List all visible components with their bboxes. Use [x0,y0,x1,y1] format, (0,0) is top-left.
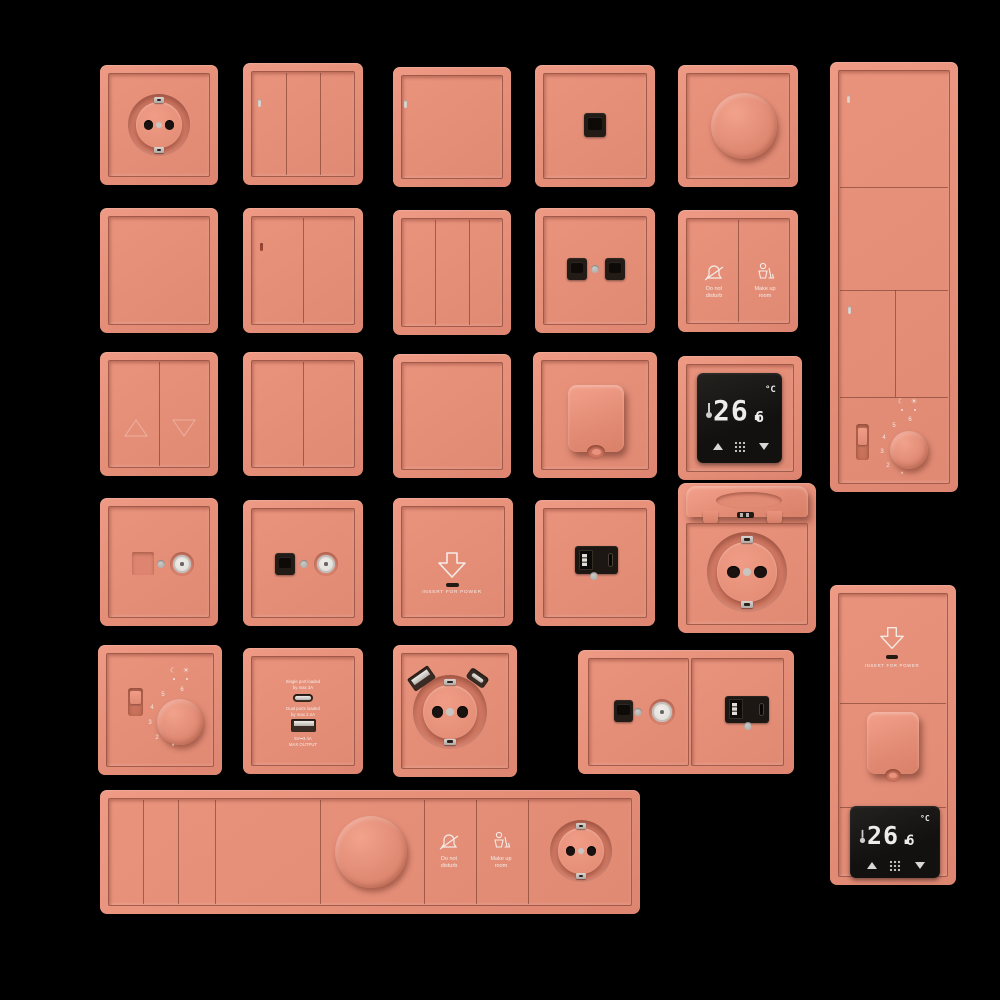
rocker-3gang[interactable] [251,71,355,177]
temperature-decimal: 6 [906,834,915,848]
mur-label-line1: Make up [754,286,775,293]
usb-c-note-line2: by max 3A [286,685,321,691]
thermostat-screen: 26. 6 °C [697,373,782,463]
rocker-wide[interactable] [214,798,319,906]
indicator-dot [590,572,598,580]
flap-pull-notch[interactable] [885,769,901,782]
flap-pull-notch[interactable] [587,445,605,459]
mur-label-line2: room [490,863,511,870]
dnd-label-line2: disturb [441,863,458,870]
moon-icon: ☾ [898,399,904,406]
ground-clip-icon [576,873,586,879]
schuko-socket [550,820,612,882]
moon-icon: ☾ [170,668,176,675]
thermostat-slider[interactable] [128,688,143,716]
indicator-dot [744,722,752,730]
dnd-label-line2: disturb [706,293,723,300]
insert-for-power-label: INSERT FOR POWER [865,663,920,669]
insert-arrow-icon [436,551,468,579]
smart-thermostat-panel: 26. 6 °C [678,356,802,480]
blind-up-button[interactable] [108,360,159,468]
up-triangle-icon [123,418,149,438]
ethernet-port [605,258,625,280]
menu-grid-icon[interactable] [734,441,746,452]
dial-number: 2 [155,735,158,741]
status-led [258,99,261,107]
rocker-narrow-3[interactable] [177,798,214,906]
schuko-usb-panel [393,645,517,777]
product-collage: ☾ ☀ 6 5 4 3 2 * [0,0,1000,1000]
usb-charger-panel [535,500,655,626]
switch-1gang-plain-panel [100,208,218,333]
switch-1gang-plain-panel-2 [393,354,511,478]
socket-hole [727,566,740,579]
card-slot[interactable] [446,583,459,587]
covered-socket-open-panel [678,483,816,633]
coax-tv-connector [314,552,338,576]
usb-c-note-line1: Single port loaded [286,679,321,685]
temperature-decimal: 6 [755,410,765,425]
switch-3gang-plain-panel [393,210,511,335]
card-slot[interactable] [886,655,898,659]
socket-hole [144,120,154,130]
dial-dot [186,678,188,680]
usb-module [575,546,618,574]
rocker-1gang[interactable] [108,216,210,325]
keycard-holder-panel: INSERT FOR POWER [393,498,513,626]
coax-tv-connector [170,552,194,576]
blind-switch-panel [100,352,218,476]
sun-icon: ☀ [911,399,917,406]
rocker-middle[interactable] [838,186,950,289]
ethernet-port [614,700,633,722]
switch-3gang-panel [243,63,363,185]
usb-rating-line2: MAX OUTPUT [289,742,317,748]
keycard-front[interactable]: INSERT FOR POWER [838,593,948,702]
blank-port-recess [132,552,154,575]
mur-label-line1: Make up [490,856,511,863]
thermostat-dial[interactable] [157,699,203,745]
temp-up-button[interactable] [713,443,723,450]
ground-clip-icon [444,679,456,686]
do-not-disturb-button[interactable]: Do not disturb [423,798,475,906]
socket-center-pin [743,568,751,576]
rocker-2gang[interactable] [251,360,355,468]
thermometer-icon [859,828,866,844]
dial-number: 4 [150,705,153,711]
status-led [404,100,407,108]
ground-clip-icon [576,823,586,829]
data-tv-usb-combo-panel [578,650,794,774]
temp-down-button[interactable] [915,862,925,869]
ground-clip-icon [154,147,164,153]
ground-clip-icon [154,97,164,103]
switch-2gang-panel [243,208,363,333]
hotel-service-panel: Do not disturb Make up room [678,210,798,332]
data-outlet-double-panel [535,208,655,333]
do-not-disturb-icon [702,263,726,283]
usb-charger-labeled-panel: Single port loaded by max 3A Dual ports … [243,648,363,774]
rocker-top[interactable] [838,70,950,186]
sun-icon: ☀ [183,668,189,675]
tv-socket-panel [100,498,218,626]
dial-number: 3 [880,449,883,455]
thermometer-icon [705,401,713,419]
vertical-multiframe-1: ☾ ☀ 6 5 4 3 2 * [830,62,958,492]
dial-number: 6 [180,687,183,693]
schuko-socket [413,675,487,749]
indicator-dot [300,560,308,568]
do-not-disturb-button[interactable]: Do not disturb [686,218,738,324]
ground-clip-icon [444,739,456,746]
temperature-unit: °C [920,815,930,823]
do-not-disturb-icon [437,832,461,852]
data-outlet-single-panel [535,65,655,187]
dimmer-panel [678,65,798,187]
schuko-socket [128,94,190,156]
insert-for-power-label: INSERT FOR POWER [422,590,482,596]
indicator-dot [634,708,642,716]
dial-frost-mark: * [172,744,174,750]
rotary-thermostat-panel: ☾ ☀ 6 5 4 3 2 * [98,645,222,775]
usb-a-port [579,550,593,570]
rocker-1gang[interactable] [401,75,503,179]
usb-module [725,696,769,723]
vertical-multiframe-2: INSERT FOR POWER 26. 6 °C [830,585,956,885]
make-up-room-button[interactable]: Make up room [475,798,527,906]
rocker-2gang[interactable] [251,216,355,325]
thermostat-slider[interactable] [856,424,869,460]
socket-center-pin [446,708,453,715]
indicator-dot [591,265,599,273]
temperature-unit: °C [765,386,776,395]
rocker-pair[interactable] [838,289,950,396]
dial-dot [901,409,903,411]
ethernet-port [275,553,295,575]
rocker-narrow-1[interactable] [108,798,142,906]
thermostat-dial[interactable] [890,431,928,469]
dnd-label-line1: Do not [441,856,458,863]
horizontal-multiframe: Do not disturb Make up room [100,790,640,914]
switch-2gang-plain-panel [243,352,363,476]
ground-clip-icon [741,601,754,608]
dial-dot [173,678,175,680]
down-triangle-icon [171,418,197,438]
socket-flap-cover[interactable] [568,385,624,452]
dnd-label-line1: Do not [706,286,723,293]
indicator-dot [157,560,165,568]
socket-hole [432,706,444,718]
status-led [260,243,263,251]
schuko-socket [707,532,787,612]
switch-1gang-panel [393,67,511,187]
socket-hole [566,846,576,856]
dimmer-knob[interactable] [335,816,407,888]
mur-label-line2: room [754,293,775,300]
rocker-3gang[interactable] [401,218,503,327]
rocker-narrow-2[interactable] [142,798,177,906]
dial-number: 5 [892,423,895,429]
ground-clip-icon [741,536,754,543]
dial-number: 2 [886,463,889,469]
ethernet-port [567,258,587,280]
schuko-socket-panel [100,65,218,185]
usb-c-port [293,694,313,702]
thermostat-screen: 26. 6 °C [850,806,940,878]
usb-a-note-line1: Dual ports loaded [286,706,320,712]
menu-grid-icon[interactable] [889,860,901,871]
dimmer-knob[interactable] [711,93,777,159]
dial-dot [914,409,916,411]
make-up-room-icon [491,831,511,853]
dial-number: 5 [161,692,164,698]
make-up-room-button[interactable]: Make up room [738,218,790,324]
temp-down-button[interactable] [759,443,769,450]
ethernet-port [584,113,606,137]
covered-socket-panel [533,352,657,478]
flap-latch [737,512,754,518]
usb-a-port [729,699,743,719]
coax-tv-connector [649,699,675,725]
dial-frost-mark: * [901,472,903,478]
usb-c-port [608,553,613,567]
usb-c-port [759,703,764,716]
temp-up-button[interactable] [867,862,877,869]
blind-down-button[interactable] [159,360,210,468]
dial-number: 4 [882,435,885,441]
rocker-1gang[interactable] [401,362,503,470]
data-tv-socket-panel [243,500,363,626]
dial-number: 6 [908,417,911,423]
dial-number: 3 [148,720,151,726]
insert-arrow-icon [878,626,906,650]
make-up-room-icon [755,262,775,284]
usb-a-note-line2: by max 2.4A [286,712,320,718]
usb-a-port [291,719,316,732]
socket-flap-cover[interactable] [867,712,919,774]
